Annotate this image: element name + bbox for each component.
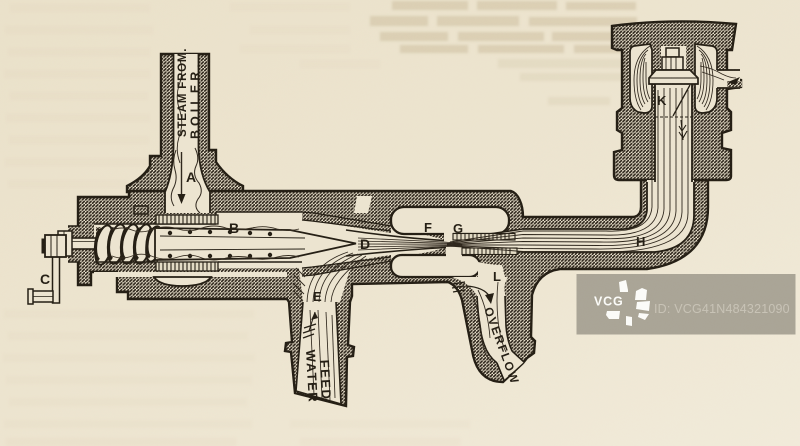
- svg-text:ID: VCG41N484321090: ID: VCG41N484321090: [654, 302, 790, 316]
- svg-text:VCG: VCG: [594, 295, 624, 309]
